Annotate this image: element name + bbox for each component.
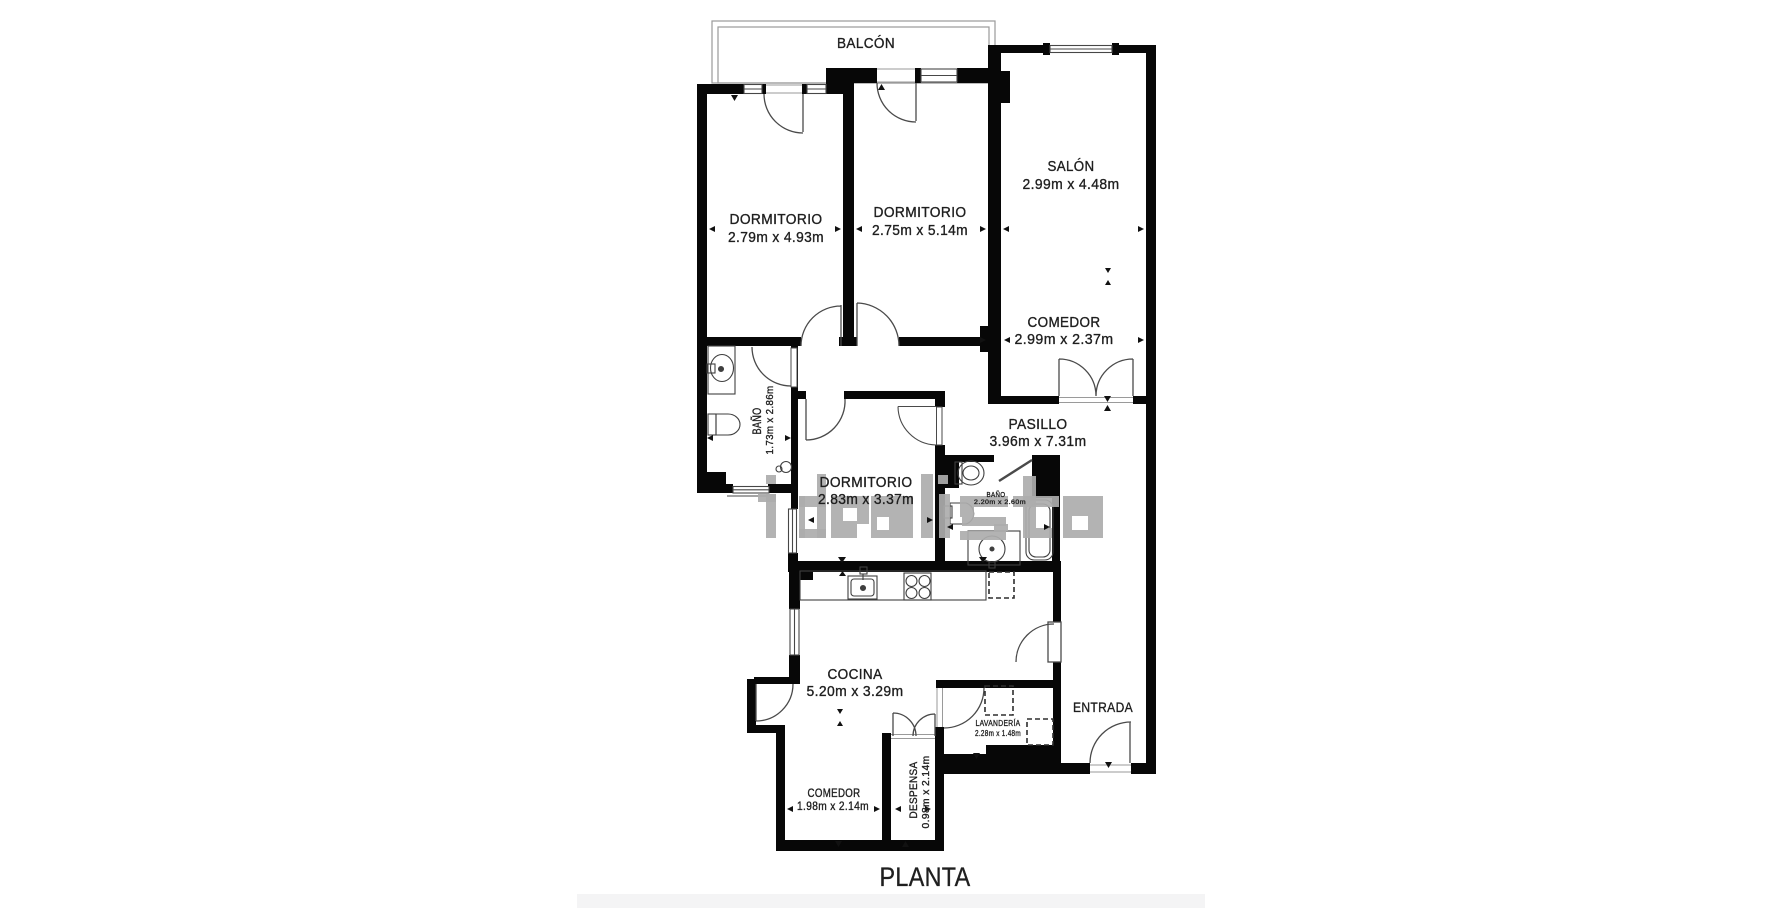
svg-text:DORMITORIO: DORMITORIO	[730, 212, 823, 228]
svg-text:1.98m x 2.14m: 1.98m x 2.14m	[797, 801, 869, 813]
svg-text:DESPENSA: DESPENSA	[908, 761, 920, 818]
svg-text:COCINA: COCINA	[828, 667, 883, 683]
svg-text:SALÓN: SALÓN	[1048, 158, 1095, 175]
svg-text:ENTRADA: ENTRADA	[1073, 700, 1133, 715]
svg-text:DORMITORIO: DORMITORIO	[874, 205, 967, 221]
svg-text:2.99m x 2.37m: 2.99m x 2.37m	[1015, 332, 1114, 348]
svg-text:COMEDOR: COMEDOR	[1028, 315, 1101, 331]
svg-text:BALCÓN: BALCÓN	[837, 35, 895, 52]
svg-text:2.79m x 4.93m: 2.79m x 4.93m	[728, 230, 824, 246]
svg-text:1.73m x 2.86m: 1.73m x 2.86m	[764, 386, 776, 455]
svg-text:2.83m x 3.37m: 2.83m x 3.37m	[818, 492, 914, 508]
svg-text:0.98m x 2.14m: 0.98m x 2.14m	[921, 756, 932, 829]
svg-text:2.99m x 4.48m: 2.99m x 4.48m	[1023, 177, 1120, 193]
svg-text:2.20m x 2.60m: 2.20m x 2.60m	[974, 499, 1026, 506]
svg-text:3.96m x 7.31m: 3.96m x 7.31m	[990, 434, 1087, 450]
svg-text:PASILLO: PASILLO	[1009, 417, 1068, 433]
svg-text:2.28m x 1.48m: 2.28m x 1.48m	[975, 728, 1021, 738]
svg-text:PLANTA: PLANTA	[880, 862, 971, 892]
svg-text:5.20m x 3.29m: 5.20m x 3.29m	[807, 684, 904, 700]
svg-text:DORMITORIO: DORMITORIO	[820, 475, 913, 491]
svg-text:2.75m x 5.14m: 2.75m x 5.14m	[872, 223, 968, 239]
svg-text:LAVANDERÍA: LAVANDERÍA	[976, 718, 1021, 728]
svg-text:COMEDOR: COMEDOR	[808, 788, 861, 800]
svg-text:BAÑO: BAÑO	[987, 490, 1006, 499]
svg-text:BAÑO: BAÑO	[751, 408, 764, 435]
